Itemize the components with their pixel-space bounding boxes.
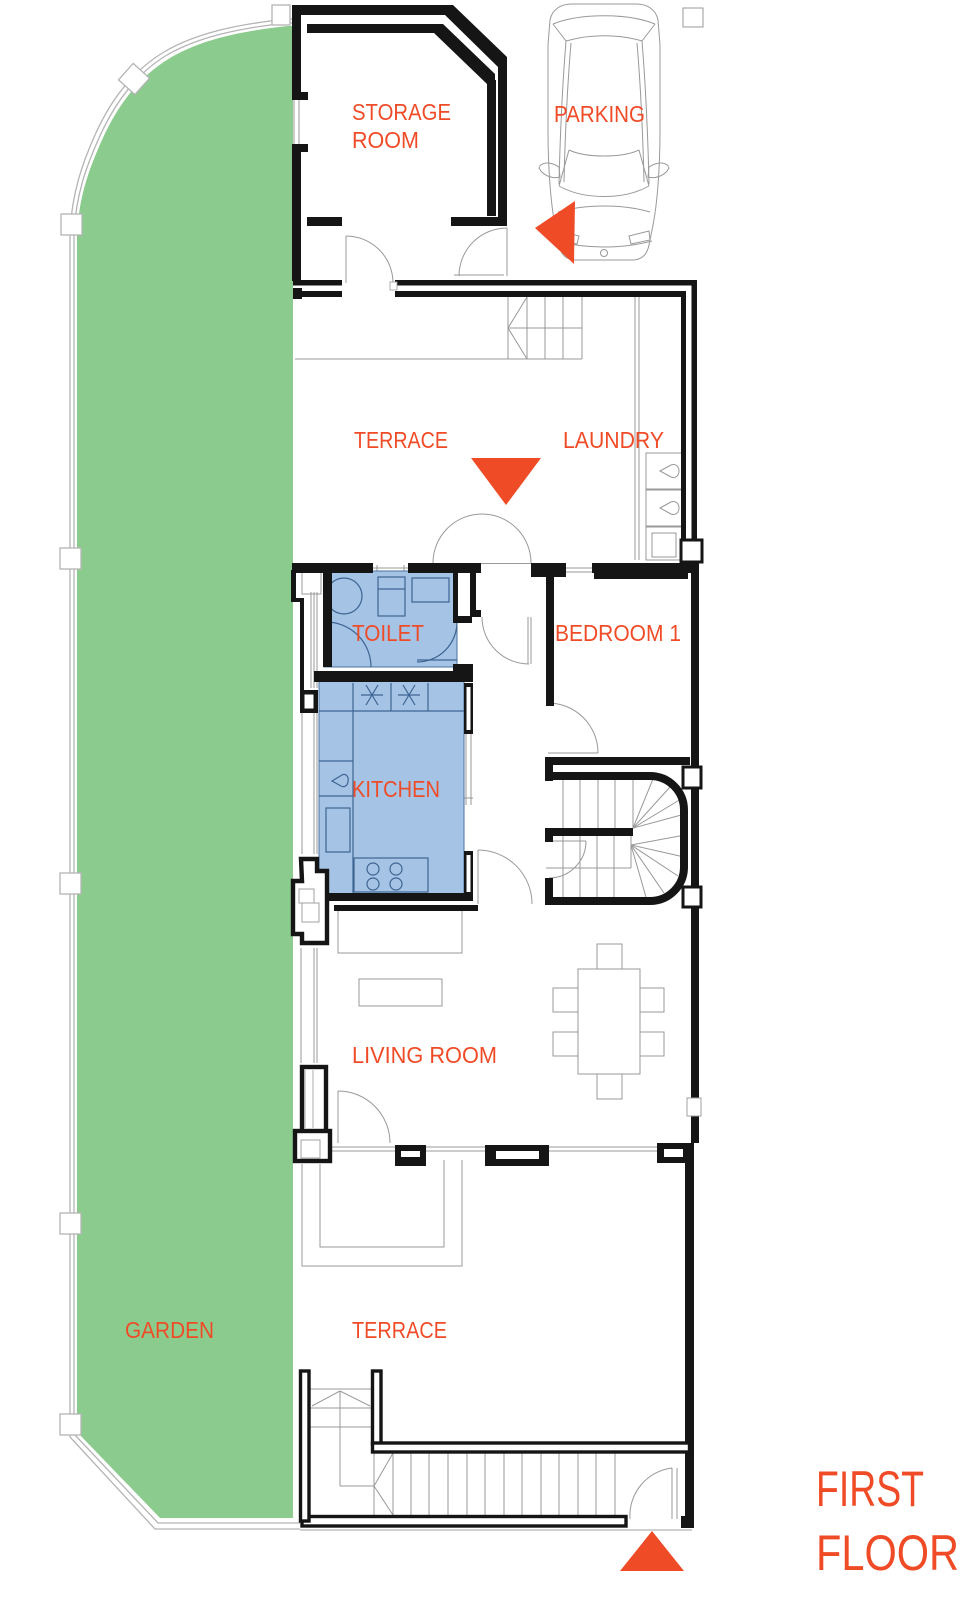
svg-text:BEDROOM 1: BEDROOM 1 [555, 620, 681, 646]
svg-text:PARKING: PARKING [554, 101, 645, 127]
svg-text:TERRACE: TERRACE [354, 427, 448, 453]
svg-text:GARDEN: GARDEN [125, 1317, 214, 1343]
svg-text:TERRACE: TERRACE [352, 1317, 447, 1343]
svg-text:FLOOR: FLOOR [816, 1525, 959, 1581]
svg-text:LIVING ROOM: LIVING ROOM [352, 1042, 497, 1068]
svg-text:KITCHEN: KITCHEN [352, 776, 440, 802]
svg-text:ROOM: ROOM [352, 127, 419, 153]
svg-text:STORAGE: STORAGE [352, 99, 451, 125]
svg-text:LAUNDRY: LAUNDRY [563, 427, 664, 453]
svg-text:FIRST: FIRST [816, 1461, 924, 1517]
svg-text:TOILET: TOILET [352, 620, 424, 646]
